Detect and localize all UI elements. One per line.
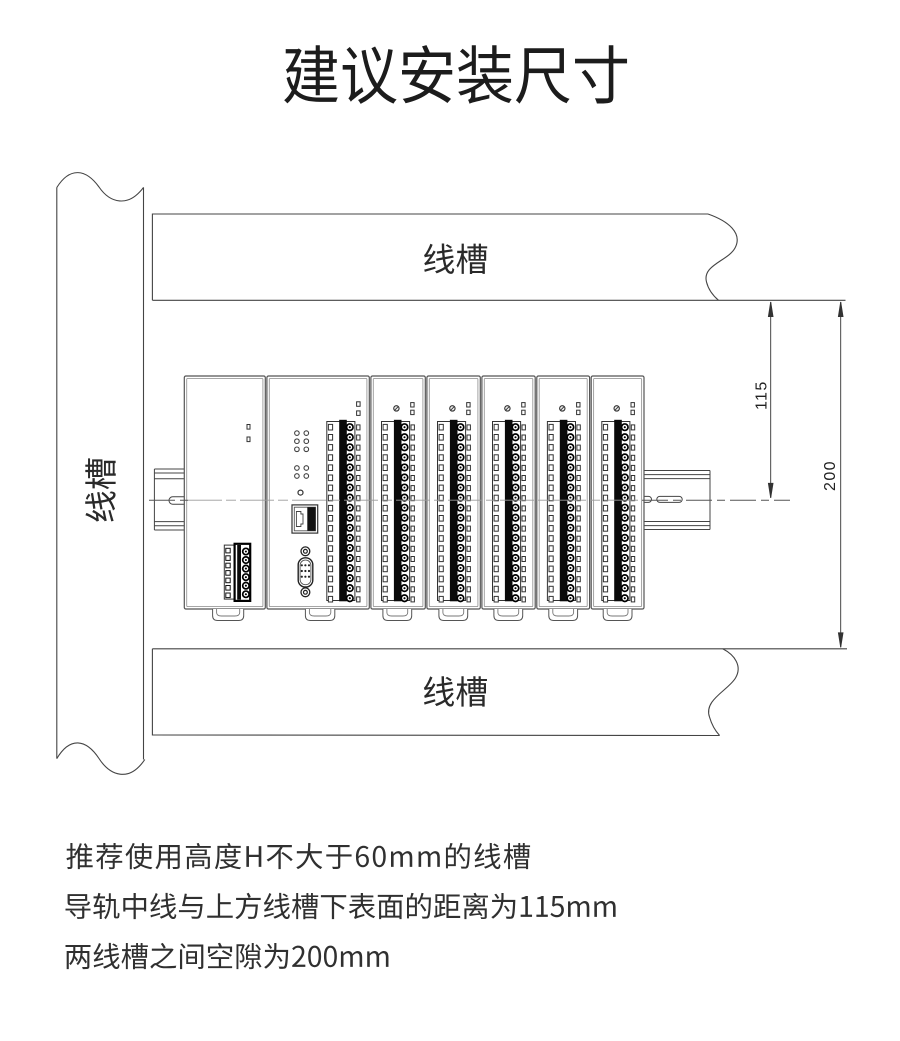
svg-text:115: 115 bbox=[754, 380, 771, 410]
svg-text:200: 200 bbox=[822, 460, 839, 491]
